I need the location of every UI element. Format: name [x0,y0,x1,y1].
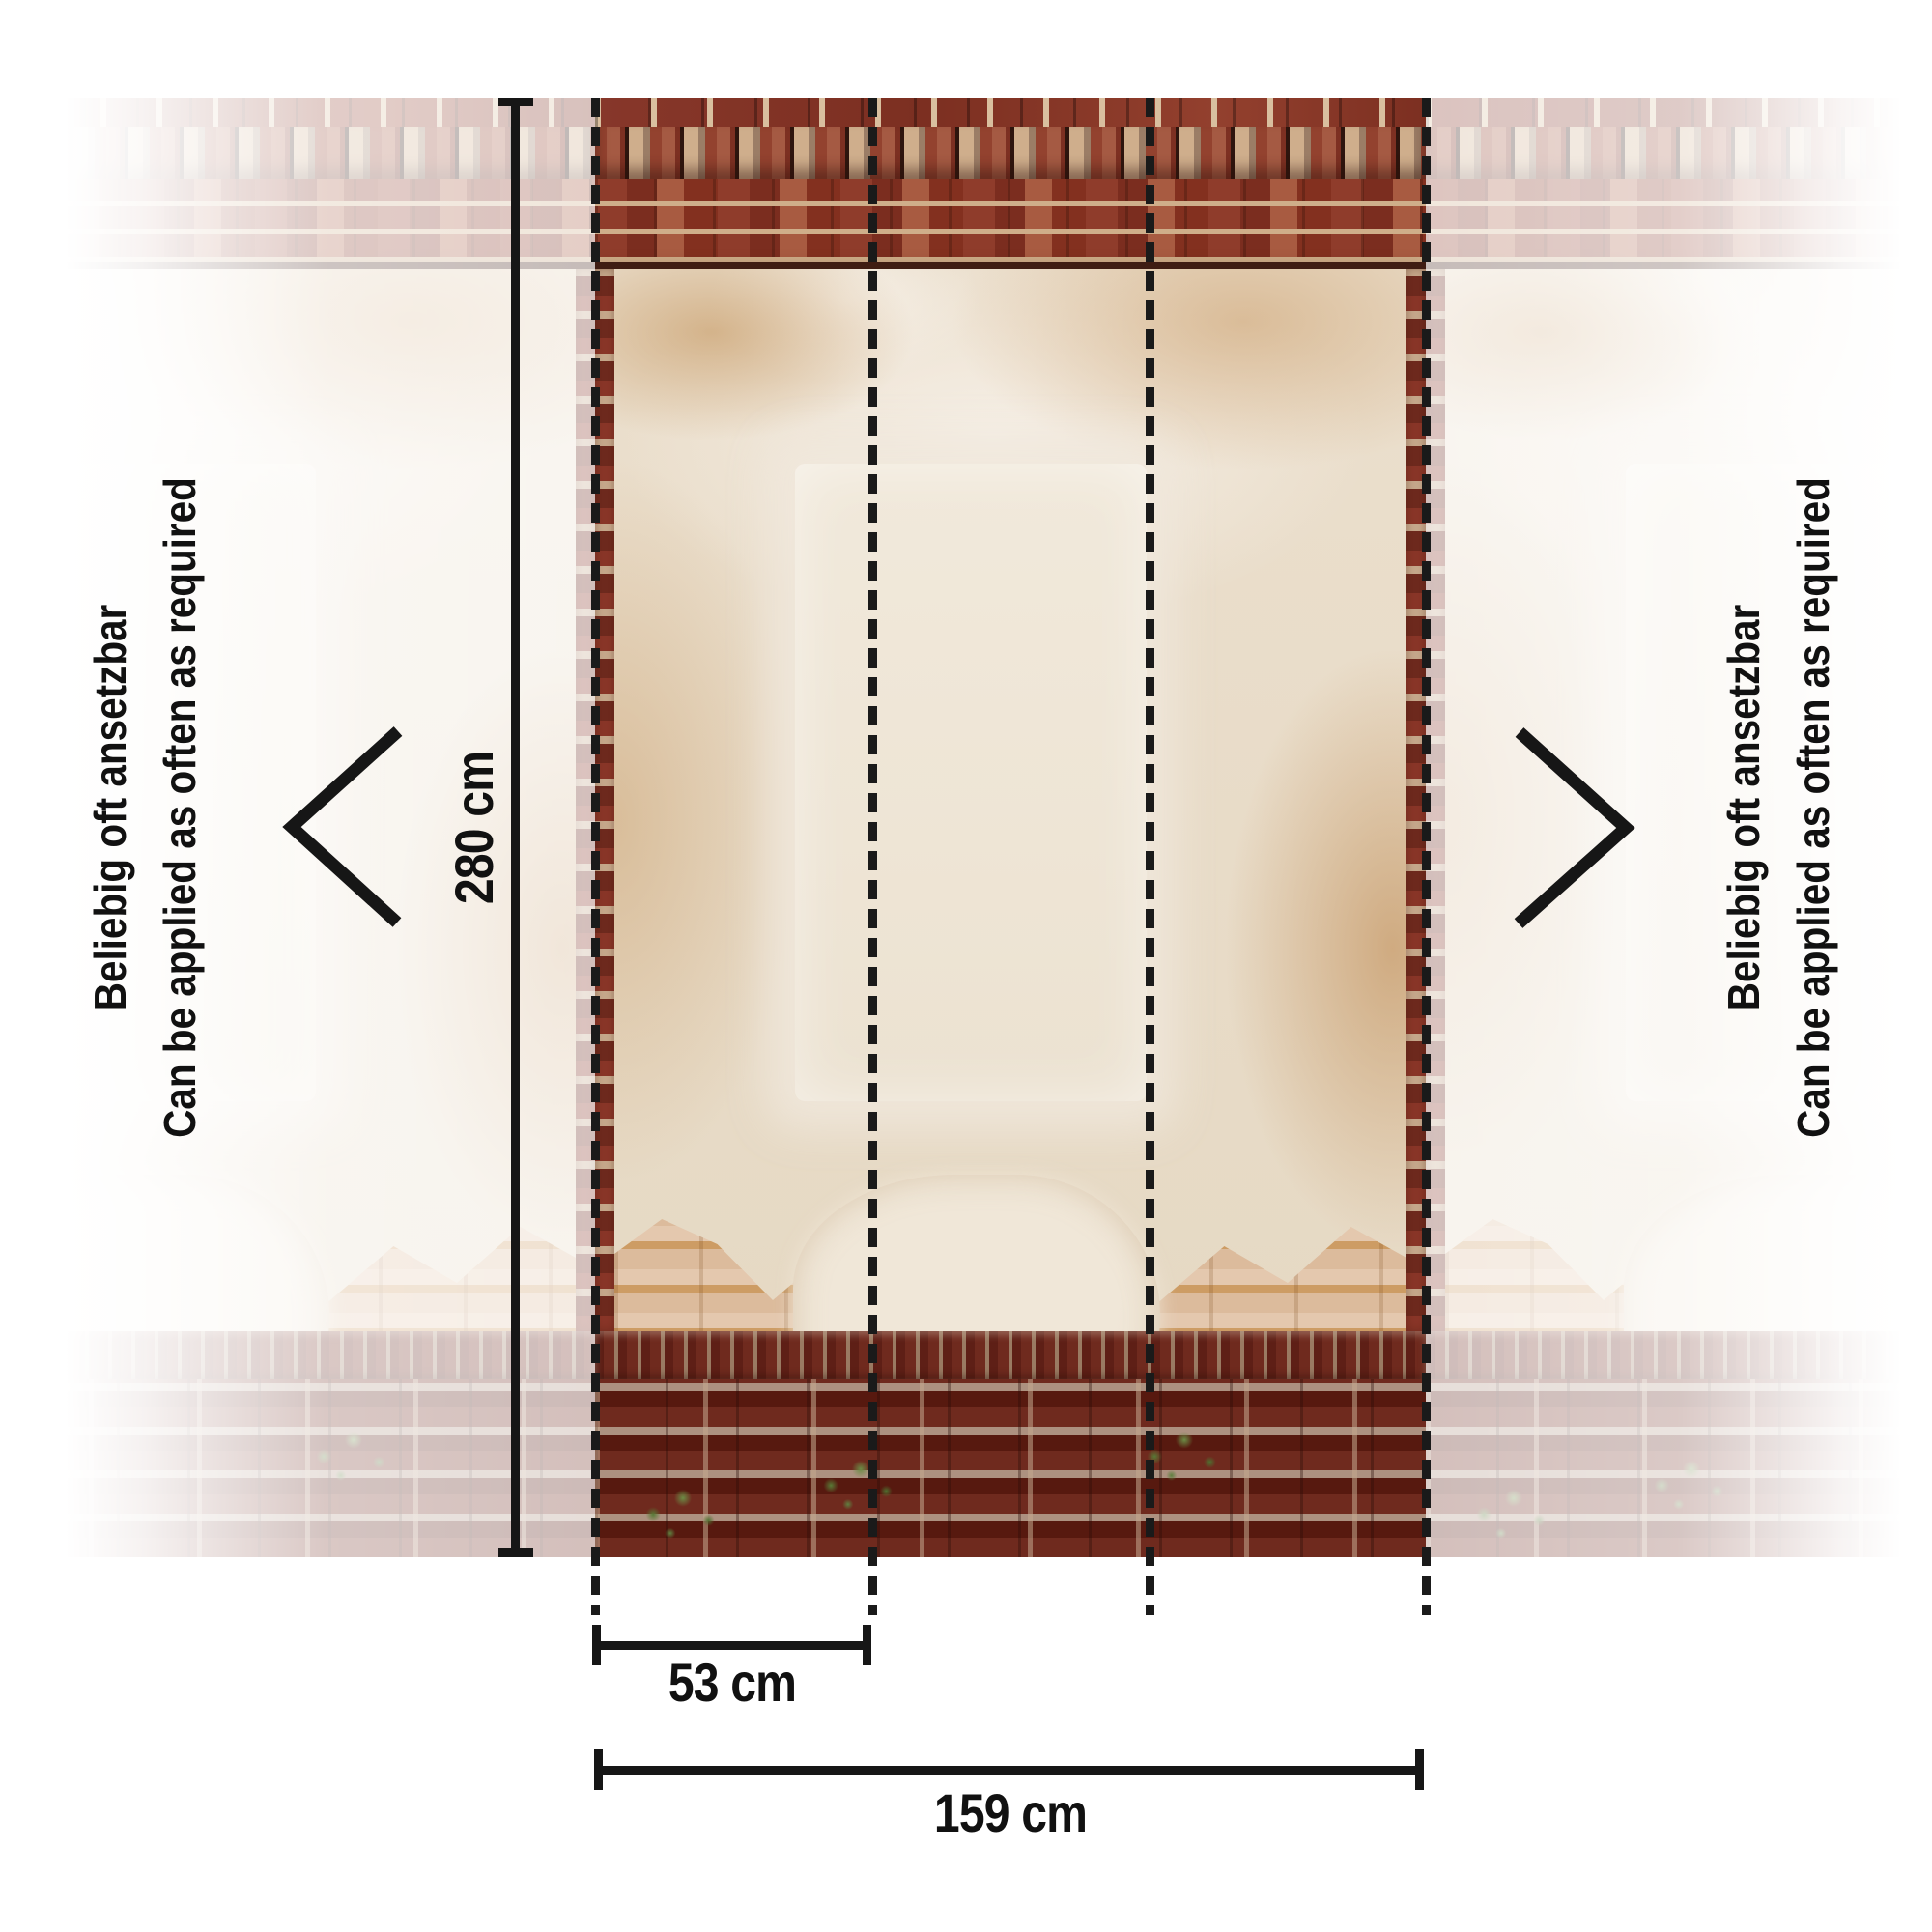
seam-dashed-line-3 [1146,98,1154,1615]
seam-dashed-line-2 [868,98,877,1615]
total-width-cap-right [1415,1749,1424,1790]
wallpaper-motif-unit [595,98,1426,1557]
seam-dashed-line-1 [591,98,600,1615]
total-width-dimension-line [599,1766,1424,1775]
repeat-note-de: Beliebig oft ansetzbar [75,477,145,1138]
height-dimension-cap-top [498,98,533,106]
seam-dashed-line-4 [1422,98,1431,1615]
repeat-note-de: Beliebig oft ansetzbar [1709,477,1778,1138]
wallpaper-photo [0,98,1932,1557]
repeat-note-left: Beliebig oft ansetzbar Can be applied as… [75,477,214,1138]
height-label: 280 cm [447,752,501,904]
wallpaper-dimension-diagram: 280 cm 53 cm 159 cm Beliebig oft ansetzb… [0,0,1932,1932]
repeat-note-right: Beliebig oft ansetzbar Can be applied as… [1709,477,1848,1138]
base-soldier-course [595,1331,1426,1379]
plaster-field [595,269,1426,1331]
height-dimension-line [511,98,520,1557]
total-width-label: 159 cm [934,1786,1087,1840]
repeat-note-en: Can be applied as often as required [1778,477,1848,1138]
strip-width-cap-left [592,1625,601,1665]
inner-plaster-panel [795,464,1147,1101]
weed-plant [630,1469,736,1551]
height-dimension-cap-bottom [498,1548,533,1557]
weed-plant [808,1440,914,1522]
strip-width-label: 53 cm [668,1656,796,1710]
right-repeat-fade [1426,98,1932,1557]
cornice-top-row [595,98,1426,127]
strip-width-dimension-line [597,1641,871,1650]
cornice-brick-courses [595,179,1426,262]
strip-width-cap-right [863,1625,871,1665]
total-width-cap-left [594,1749,603,1790]
cornice-dentil-row [595,127,1426,179]
repeat-note-en: Can be applied as often as required [145,477,214,1138]
brick-cornice [595,98,1426,269]
